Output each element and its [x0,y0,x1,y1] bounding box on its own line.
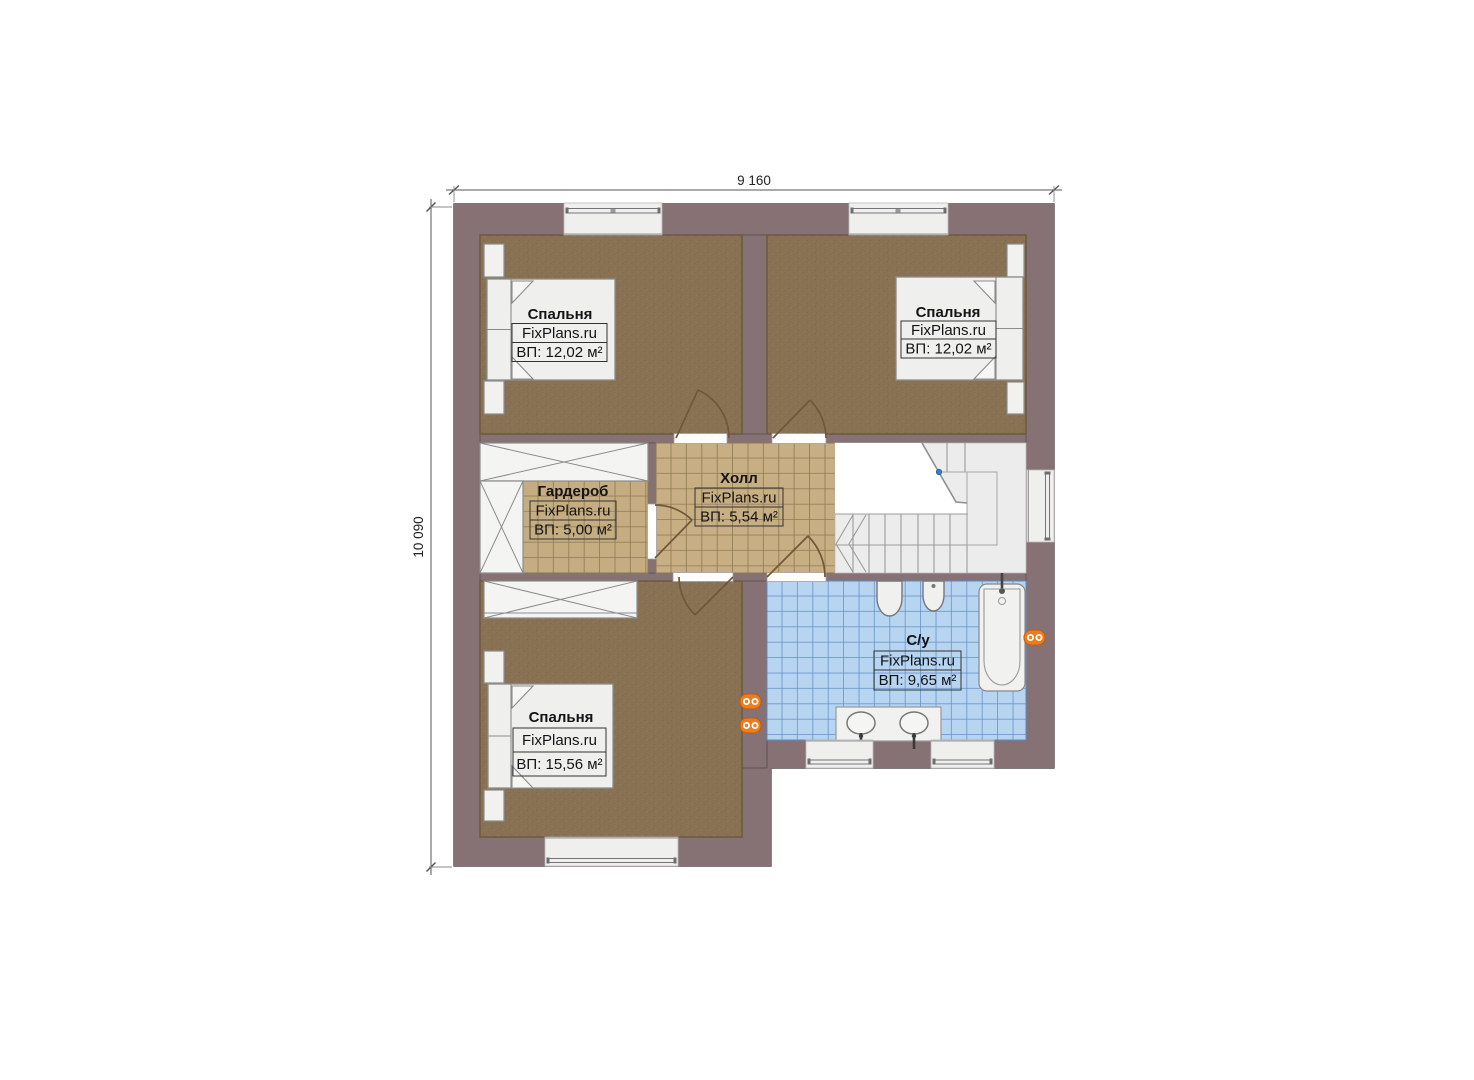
svg-text:Спальня: Спальня [528,306,593,323]
svg-text:ВП: 12,02 м²: ВП: 12,02 м² [516,344,602,361]
svg-text:FixPlans.ru: FixPlans.ru [911,322,986,339]
svg-text:10 090: 10 090 [411,516,426,557]
svg-text:ВП: 9,65 м²: ВП: 9,65 м² [879,672,957,689]
svg-text:ВП: 15,56 м²: ВП: 15,56 м² [516,756,602,773]
svg-text:FixPlans.ru: FixPlans.ru [535,503,610,520]
svg-text:FixPlans.ru: FixPlans.ru [522,325,597,342]
svg-text:Спальня: Спальня [916,304,981,321]
svg-text:Спальня: Спальня [529,709,594,726]
svg-text:ВП: 5,54 м²: ВП: 5,54 м² [700,509,778,526]
svg-text:ВП: 12,02 м²: ВП: 12,02 м² [905,341,991,358]
svg-text:Гардероб: Гардероб [538,483,609,500]
svg-text:Холл: Холл [720,470,758,487]
svg-text:FixPlans.ru: FixPlans.ru [522,732,597,749]
svg-text:ВП: 5,00 м²: ВП: 5,00 м² [534,522,612,539]
svg-text:С/у: С/у [906,632,930,649]
svg-text:9 160: 9 160 [737,173,771,188]
svg-text:FixPlans.ru: FixPlans.ru [880,653,955,670]
svg-text:FixPlans.ru: FixPlans.ru [701,490,776,507]
